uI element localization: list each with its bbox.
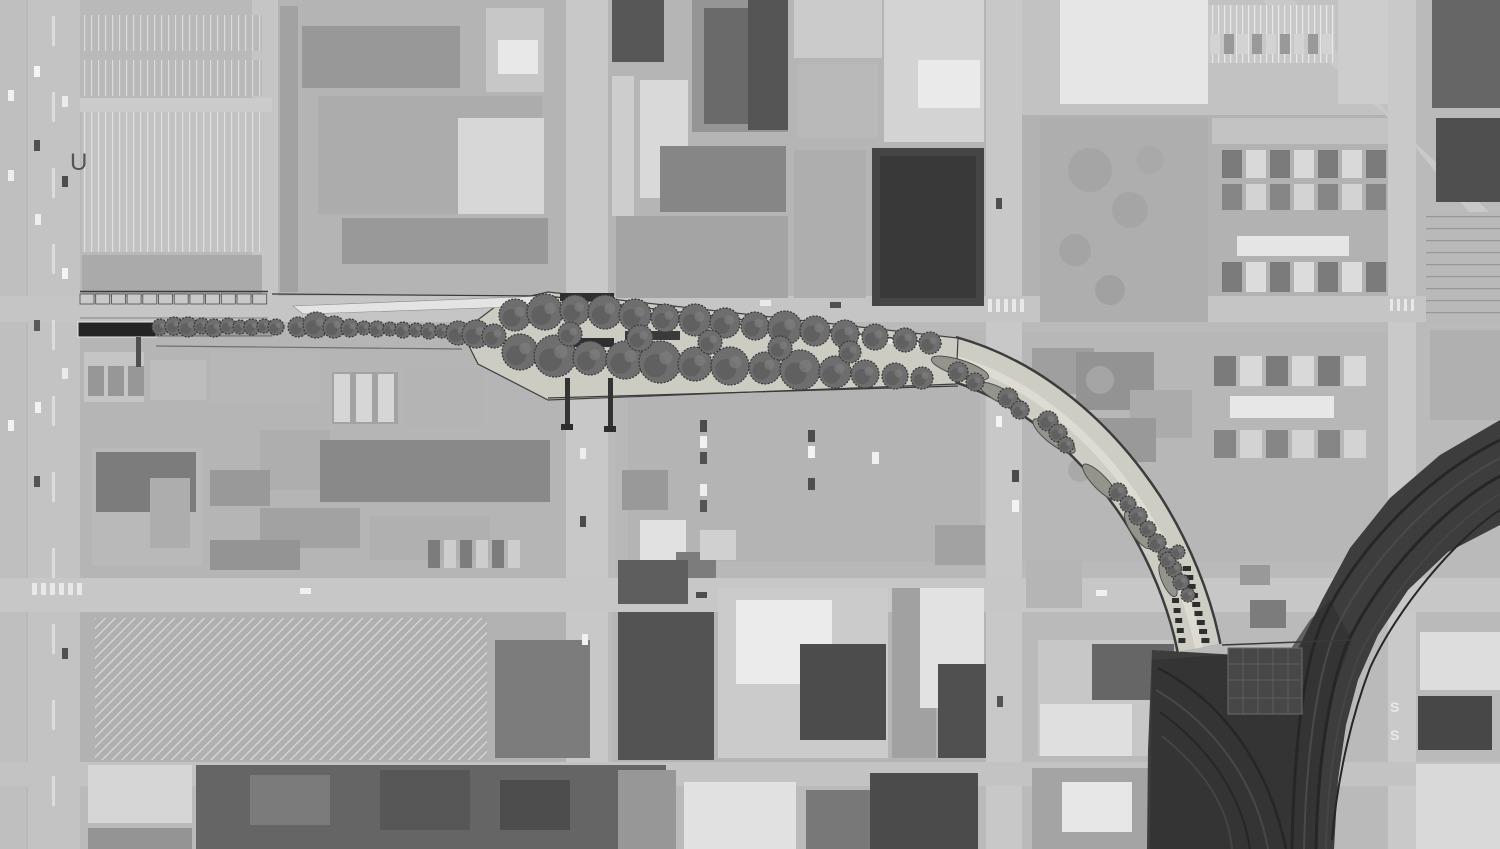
aerial-photo-canvas: USS: [0, 0, 1500, 849]
aerial-site-plan-map: USS: [0, 0, 1500, 849]
road-marking-s-lower: S: [1390, 727, 1399, 743]
road-marking-s-upper: S: [1390, 699, 1399, 715]
road-label-u: U: [70, 149, 87, 176]
